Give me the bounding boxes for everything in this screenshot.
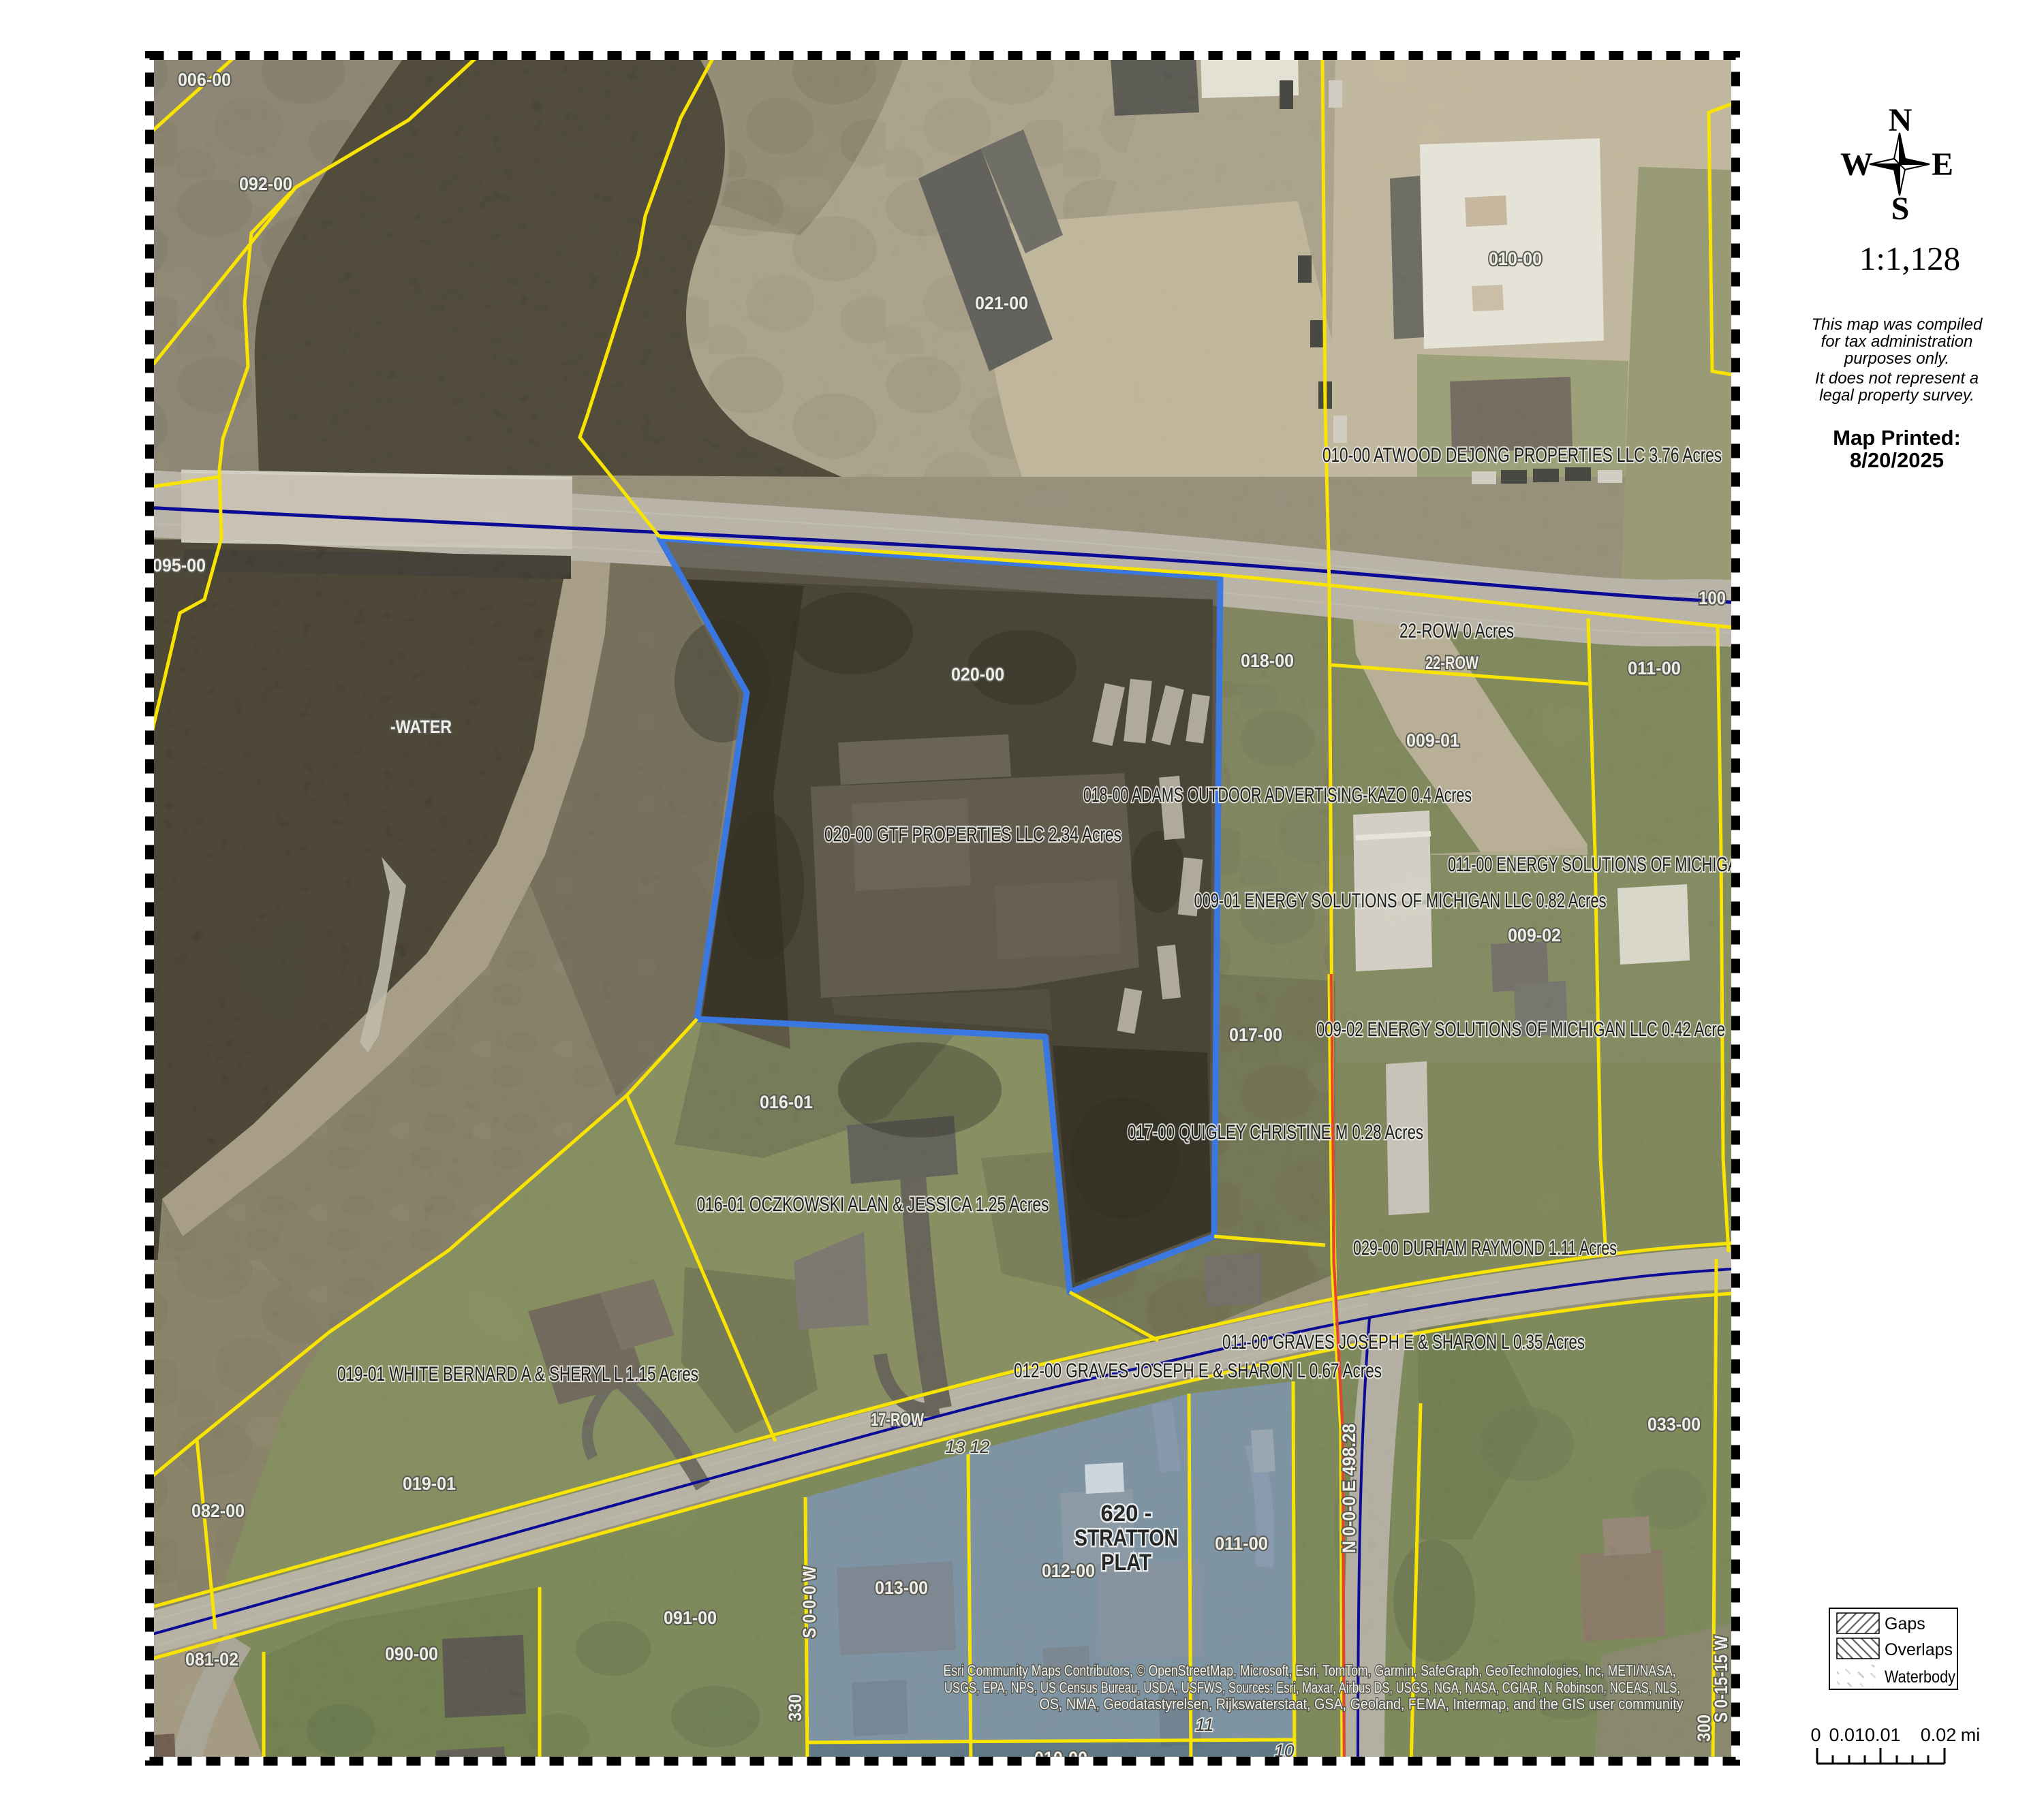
svg-text:029-00 DURHAM RAYMOND 1.11 Acr: 029-00 DURHAM RAYMOND 1.11 Acres <box>1353 1237 1617 1259</box>
svg-text:17-ROW: 17-ROW <box>871 1409 924 1430</box>
svg-text:620 -: 620 - <box>1101 1501 1152 1527</box>
svg-text:033-00: 033-00 <box>1647 1414 1701 1435</box>
svg-text:011-00: 011-00 <box>1215 1533 1268 1554</box>
svg-text:S 0-15-15 W: S 0-15-15 W <box>1711 1635 1731 1723</box>
svg-text:012-00: 012-00 <box>1042 1561 1095 1581</box>
svg-text:Gaps: Gaps <box>1885 1614 1925 1633</box>
svg-text:It does not represent a: It does not represent a <box>1815 369 1979 388</box>
svg-text:22-ROW: 22-ROW <box>1425 653 1478 673</box>
svg-text:009-01: 009-01 <box>1406 730 1459 751</box>
svg-text:purposes only.: purposes only. <box>1844 349 1949 368</box>
svg-text:012-00 GRAVES JOSEPH E & SHARO: 012-00 GRAVES JOSEPH E & SHARON L 0.67 A… <box>1014 1360 1382 1382</box>
svg-text:082-00: 082-00 <box>191 1501 245 1521</box>
svg-text:N: N <box>1889 102 1913 138</box>
svg-text:0: 0 <box>1810 1725 1821 1745</box>
svg-text:Esri Community Maps Contributo: Esri Community Maps Contributors, © Open… <box>944 1662 1676 1679</box>
svg-text:009-02 ENERGY SOLUTIONS OF MIC: 009-02 ENERGY SOLUTIONS OF MICHIGAN LLC … <box>1316 1018 1725 1041</box>
svg-text:N 0-0-0 E 498.28: N 0-0-0 E 498.28 <box>1339 1424 1359 1553</box>
svg-text:0.010.01: 0.010.01 <box>1829 1725 1900 1745</box>
svg-text:0.02: 0.02 <box>1921 1725 1957 1745</box>
svg-text:009-01 ENERGY SOLUTIONS OF MIC: 009-01 ENERGY SOLUTIONS OF MICHIGAN LLC … <box>1194 890 1607 912</box>
svg-text:mi: mi <box>1961 1725 1981 1745</box>
svg-text:11: 11 <box>1196 1715 1214 1735</box>
svg-text:330: 330 <box>785 1694 805 1721</box>
svg-text:020-00 GTF PROPERTIES LLC 2.34: 020-00 GTF PROPERTIES LLC 2.34 Acres <box>824 824 1121 846</box>
svg-text:300: 300 <box>1694 1715 1714 1742</box>
svg-text:018-00 ADAMS OUTDOOR ADVERTISI: 018-00 ADAMS OUTDOOR ADVERTISING-KAZO 0.… <box>1083 784 1472 807</box>
svg-text:011-00: 011-00 <box>1628 658 1681 678</box>
svg-text:095-00: 095-00 <box>153 555 206 576</box>
svg-text:legal property survey.: legal property survey. <box>1819 386 1975 405</box>
svg-text:Overlaps: Overlaps <box>1885 1640 1953 1659</box>
svg-text:Map Printed:: Map Printed: <box>1833 426 1961 450</box>
svg-text:OS, NMA, Geodatastyrelsen, Rij: OS, NMA, Geodatastyrelsen, Rijkswatersta… <box>1040 1695 1684 1712</box>
svg-text:22-ROW 0 Acres: 22-ROW 0 Acres <box>1399 620 1514 642</box>
svg-text:013-00: 013-00 <box>875 1578 928 1598</box>
svg-text:009-02: 009-02 <box>1508 925 1561 945</box>
svg-text:-WATER: -WATER <box>390 717 452 737</box>
svg-text:13 12: 13 12 <box>945 1437 990 1457</box>
svg-text:091-00: 091-00 <box>664 1608 717 1628</box>
svg-text:017-00 QUIGLEY CHRISTINE M 0.2: 017-00 QUIGLEY CHRISTINE M 0.28 Acres <box>1128 1121 1423 1144</box>
svg-text:USGS, EPA, NPS, US Census Bure: USGS, EPA, NPS, US Census Bureau, USDA, … <box>944 1679 1680 1696</box>
svg-text:for tax administration: for tax administration <box>1821 332 1973 351</box>
svg-text:081-02: 081-02 <box>185 1649 238 1670</box>
svg-text:018-00: 018-00 <box>1241 651 1294 671</box>
svg-text:100: 100 <box>1699 588 1726 608</box>
svg-text:Waterbody: Waterbody <box>1885 1668 1955 1687</box>
svg-text:017-00: 017-00 <box>1229 1024 1282 1045</box>
svg-text:006-00: 006-00 <box>178 69 231 90</box>
svg-text:010-00 ATWOOD DEJONG PROPERTIE: 010-00 ATWOOD DEJONG PROPERTIES LLC 3.76… <box>1322 444 1722 467</box>
svg-text:W: W <box>1840 146 1873 183</box>
svg-text:1:1,128: 1:1,128 <box>1859 240 1960 277</box>
svg-text:090-00: 090-00 <box>385 1644 438 1664</box>
svg-text:STRATTON: STRATTON <box>1074 1525 1178 1551</box>
svg-text:092-00: 092-00 <box>239 174 292 194</box>
svg-text:E: E <box>1932 146 1953 183</box>
svg-text:S: S <box>1891 191 1910 227</box>
svg-text:011-00 GRAVES JOSEPH E & SHARO: 011-00 GRAVES JOSEPH E & SHARON L 0.35 A… <box>1222 1331 1585 1353</box>
svg-text:010-00: 010-00 <box>1489 249 1542 269</box>
svg-text:020-00: 020-00 <box>951 664 1004 685</box>
svg-text:S 0-0-0 W: S 0-0-0 W <box>799 1566 820 1638</box>
svg-text:This map was compiled: This map was compiled <box>1812 315 1983 334</box>
svg-text:8/20/2025: 8/20/2025 <box>1850 448 1944 472</box>
svg-text:019-01: 019-01 <box>403 1473 456 1494</box>
svg-text:016-01: 016-01 <box>760 1092 813 1112</box>
svg-text:PLAT: PLAT <box>1101 1550 1151 1576</box>
svg-text:016-01 OCZKOWSKI ALAN & JESSIC: 016-01 OCZKOWSKI ALAN & JESSICA 1.25 Acr… <box>697 1193 1049 1216</box>
svg-text:019-01 WHITE BERNARD A & SHERY: 019-01 WHITE BERNARD A & SHERYL L 1.15 A… <box>337 1363 698 1386</box>
svg-text:021-00: 021-00 <box>975 293 1028 313</box>
